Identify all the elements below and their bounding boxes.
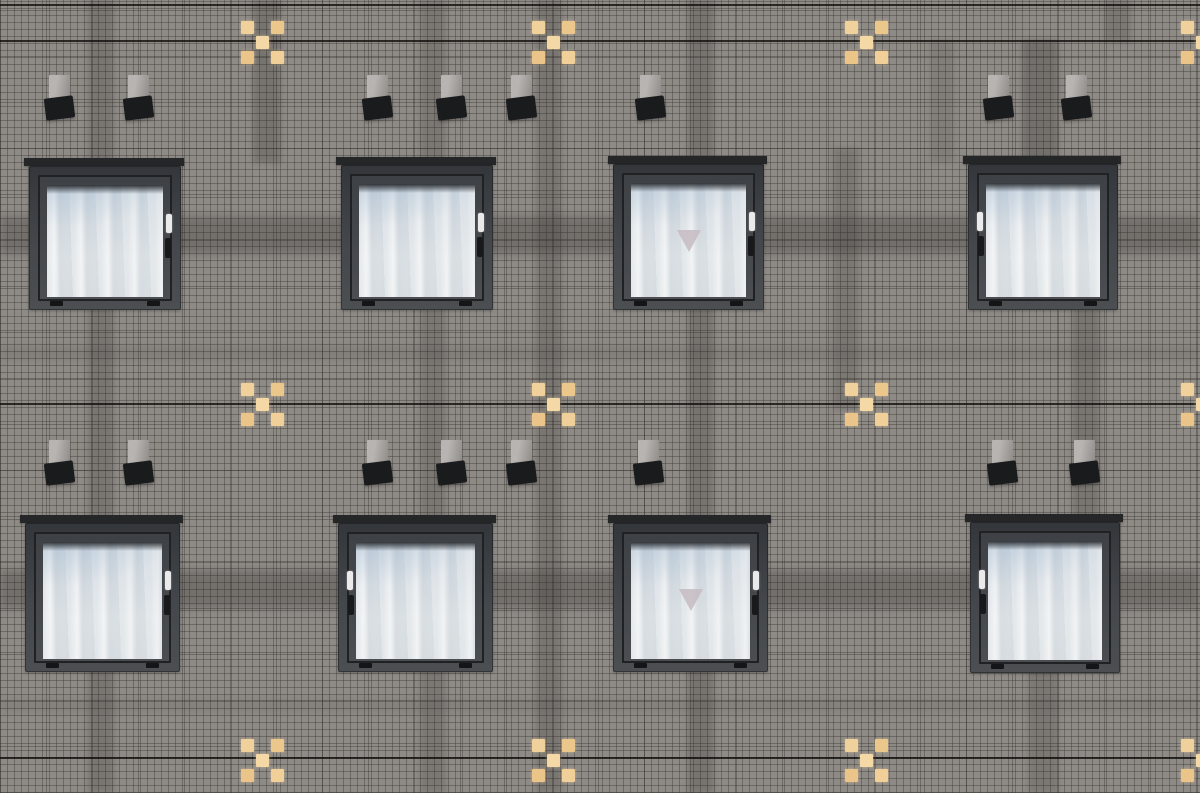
yellow-tile [532, 769, 545, 782]
facade-joint-line [0, 40, 1200, 42]
window-drainage-cap-right [730, 301, 743, 306]
window-handle [165, 238, 171, 258]
yellow-tile [271, 413, 284, 426]
window-handle [978, 236, 984, 256]
facade-joint-line [0, 4, 1200, 6]
yellow-tile [562, 383, 575, 396]
wall-lamp-shade [635, 95, 666, 120]
yellow-tile [562, 769, 575, 782]
yellow-tile [1196, 36, 1200, 49]
window-frame [341, 165, 493, 310]
wall-lamp [507, 75, 537, 121]
yellow-tile [241, 413, 254, 426]
yellow-tile [256, 398, 269, 411]
window-glass-with-curtain [988, 541, 1102, 660]
facade-horizontal-shadow-band [0, 700, 1200, 712]
window [968, 164, 1118, 310]
wall-lamp [124, 440, 154, 486]
window-drainage-cap-right [147, 301, 160, 306]
wall-lamp-shade [362, 95, 393, 120]
window-drainage-cap-left [634, 663, 647, 668]
window-glass-with-curtain [631, 542, 750, 659]
window-drainage-cap-right [734, 663, 747, 668]
window-drainage-cap-left [50, 301, 63, 306]
yellow-tile [860, 398, 873, 411]
window-handle [477, 237, 483, 257]
window-lintel [20, 515, 183, 523]
yellow-tile [241, 21, 254, 34]
wall-lamp-shade [123, 95, 154, 120]
window-handle [980, 594, 986, 614]
window-glass-with-curtain [631, 183, 746, 297]
yellow-tile-cross [241, 739, 284, 782]
yellow-tile [1181, 21, 1194, 34]
window-lintel [24, 158, 184, 166]
window-drainage-cap-left [989, 301, 1002, 306]
facade-joint-line [0, 757, 1200, 759]
window-drainage-cap-right [146, 663, 159, 668]
wall-lamp [634, 440, 664, 486]
yellow-tile [547, 754, 560, 767]
wall-lamp [124, 75, 154, 121]
curtain-triangle-marker [679, 589, 703, 611]
yellow-tile [547, 398, 560, 411]
yellow-tile [845, 769, 858, 782]
yellow-tile [845, 383, 858, 396]
facade-horizontal-shadow-band [0, 346, 1200, 360]
yellow-tile [256, 36, 269, 49]
yellow-tile [845, 739, 858, 752]
wall-lamp-shade [362, 460, 393, 485]
yellow-tile [875, 21, 888, 34]
yellow-tile [875, 383, 888, 396]
yellow-tile [241, 383, 254, 396]
facade-vertical-joint-band [930, 40, 954, 163]
yellow-tile [271, 769, 284, 782]
window-frame [968, 164, 1118, 310]
yellow-tile [532, 413, 545, 426]
window-frame [970, 522, 1120, 673]
yellow-tile [532, 383, 545, 396]
yellow-tile [562, 413, 575, 426]
yellow-tile [875, 51, 888, 64]
yellow-tile [1181, 739, 1194, 752]
wall-lamp [636, 75, 666, 121]
yellow-tile [562, 21, 575, 34]
facade-vertical-joint-band [1105, 0, 1131, 42]
window-handle-plate [166, 214, 172, 233]
yellow-tile [532, 739, 545, 752]
yellow-tile [271, 383, 284, 396]
wall-lamp [45, 440, 75, 486]
window-lintel [333, 515, 496, 523]
yellow-tile [875, 739, 888, 752]
window-lintel [965, 514, 1123, 522]
wall-lamp-shade [987, 460, 1018, 485]
facade-vertical-joint-band [88, 0, 114, 793]
wall-lamp [507, 440, 537, 486]
window-glass-with-curtain [43, 542, 162, 659]
yellow-tile [1196, 754, 1200, 767]
yellow-tile [845, 21, 858, 34]
yellow-tile-cross [845, 21, 888, 64]
window-handle-plate [979, 570, 985, 589]
yellow-tile [875, 413, 888, 426]
window-lintel [963, 156, 1121, 164]
window-drainage-cap-left [46, 663, 59, 668]
window [338, 523, 493, 672]
window-frame [25, 523, 180, 672]
yellow-tile [256, 754, 269, 767]
facade-vertical-joint-band [1022, 40, 1058, 166]
yellow-tile [860, 36, 873, 49]
window-handle-plate [977, 212, 983, 231]
window-handle [164, 595, 170, 615]
window-drainage-cap-right [459, 663, 472, 668]
window-handle-plate [165, 571, 171, 590]
wall-lamp-shade [983, 95, 1014, 120]
yellow-tile [1181, 413, 1194, 426]
building-facade-photo [0, 0, 1200, 793]
facade-vertical-joint-band [833, 148, 859, 410]
window [341, 165, 493, 310]
wall-lamp-shade [633, 460, 664, 485]
window-frame [613, 523, 768, 672]
yellow-tile-cross [241, 21, 284, 64]
window-handle-plate [749, 212, 755, 231]
wall-lamp [437, 75, 467, 121]
yellow-tile [875, 769, 888, 782]
yellow-tile [1181, 383, 1194, 396]
facade-vertical-joint-band [688, 0, 714, 793]
wall-lamp-shade [436, 460, 467, 485]
window-handle-plate [347, 571, 353, 590]
yellow-tile [845, 413, 858, 426]
wall-lamp [437, 440, 467, 486]
yellow-tile [1181, 769, 1194, 782]
window-frame [613, 164, 764, 310]
window-drainage-cap-right [459, 301, 472, 306]
window-handle [752, 595, 758, 615]
window-handle-plate [753, 571, 759, 590]
window [29, 166, 181, 310]
wall-lamp-shade [436, 95, 467, 120]
wall-lamp-shade [44, 460, 75, 485]
yellow-tile [562, 51, 575, 64]
window-frame [29, 166, 181, 310]
window-drainage-cap-left [991, 664, 1004, 669]
yellow-tile [547, 36, 560, 49]
yellow-tile-cross [1181, 21, 1200, 64]
wall-lamp [984, 75, 1014, 121]
yellow-tile-cross [845, 739, 888, 782]
wall-lamp [363, 440, 393, 486]
wall-lamp-shade [44, 95, 75, 120]
window-frame [338, 523, 493, 672]
yellow-tile [845, 51, 858, 64]
yellow-tile [532, 21, 545, 34]
yellow-tile [271, 51, 284, 64]
yellow-tile [860, 754, 873, 767]
window-lintel [336, 157, 496, 165]
yellow-tile [532, 51, 545, 64]
window-drainage-cap-left [362, 301, 375, 306]
yellow-tile [271, 21, 284, 34]
yellow-tile [241, 739, 254, 752]
window-glass-with-curtain [356, 542, 475, 659]
window-handle [748, 236, 754, 256]
wall-lamp-shade [506, 460, 537, 485]
window [613, 164, 764, 310]
window-drainage-cap-left [359, 663, 372, 668]
yellow-tile-cross [532, 739, 575, 782]
window [970, 522, 1120, 673]
wall-lamp-shade [1069, 460, 1100, 485]
window-handle [348, 595, 354, 615]
window-handle-plate [478, 213, 484, 232]
wall-lamp [988, 440, 1018, 486]
window-lintel [608, 515, 771, 523]
yellow-tile [241, 769, 254, 782]
wall-lamp [363, 75, 393, 121]
yellow-tile-cross [1181, 383, 1200, 426]
yellow-tile-cross [532, 383, 575, 426]
mosaic-tile-wall [0, 0, 1200, 793]
window-drainage-cap-left [634, 301, 647, 306]
yellow-tile [241, 51, 254, 64]
wall-lamp [45, 75, 75, 121]
window-glass-with-curtain [47, 185, 163, 297]
yellow-tile-cross [241, 383, 284, 426]
yellow-tile [271, 739, 284, 752]
wall-lamp-shade [1061, 95, 1092, 120]
yellow-tile [562, 739, 575, 752]
window-lintel [608, 156, 767, 164]
wall-lamp [1070, 440, 1100, 486]
curtain-triangle-marker [677, 230, 701, 252]
window-glass-with-curtain [359, 184, 475, 297]
yellow-tile-cross [845, 383, 888, 426]
wall-lamp-shade [123, 460, 154, 485]
window-glass-with-curtain [986, 183, 1100, 297]
yellow-tile [1181, 51, 1194, 64]
facade-joint-line [0, 403, 1200, 405]
yellow-tile-cross [1181, 739, 1200, 782]
wall-lamp-shade [506, 95, 537, 120]
window-drainage-cap-right [1084, 301, 1097, 306]
wall-lamp [1062, 75, 1092, 121]
yellow-tile-cross [532, 21, 575, 64]
window-drainage-cap-right [1086, 664, 1099, 669]
window [613, 523, 768, 672]
window [25, 523, 180, 672]
yellow-tile [1196, 398, 1200, 411]
